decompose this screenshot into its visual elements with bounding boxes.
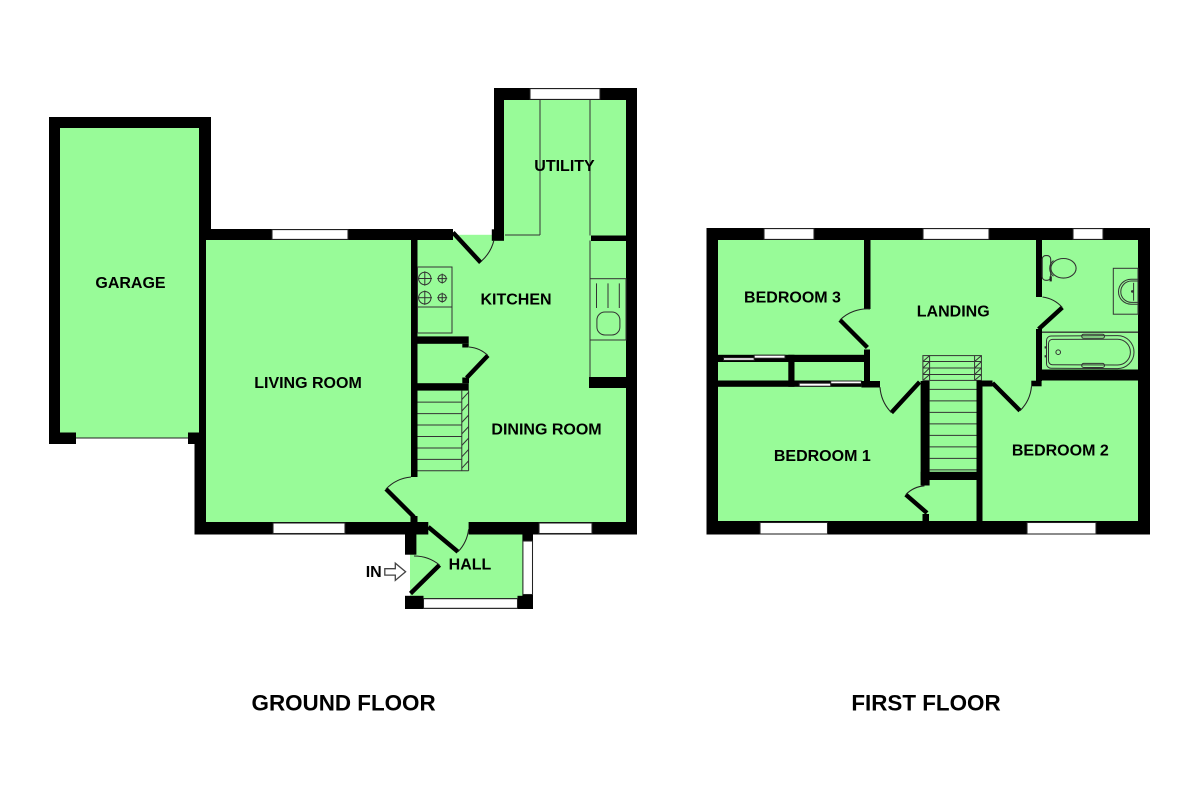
svg-text:BEDROOM 3: BEDROOM 3 (744, 290, 841, 307)
svg-text:KITCHEN: KITCHEN (480, 292, 551, 309)
svg-text:FIRST FLOOR: FIRST FLOOR (851, 691, 1000, 716)
svg-text:GROUND FLOOR: GROUND FLOOR (252, 690, 436, 715)
svg-text:BEDROOM 1: BEDROOM 1 (774, 448, 871, 465)
svg-text:UTILITY: UTILITY (534, 158, 595, 175)
svg-text:GARAGE: GARAGE (95, 275, 166, 292)
svg-text:HALL: HALL (449, 557, 492, 574)
svg-text:LIVING ROOM: LIVING ROOM (254, 375, 362, 392)
svg-text:BEDROOM 2: BEDROOM 2 (1012, 443, 1109, 460)
svg-text:IN: IN (366, 564, 382, 581)
svg-text:LANDING: LANDING (917, 304, 990, 321)
svg-text:DINING ROOM: DINING ROOM (491, 422, 601, 439)
